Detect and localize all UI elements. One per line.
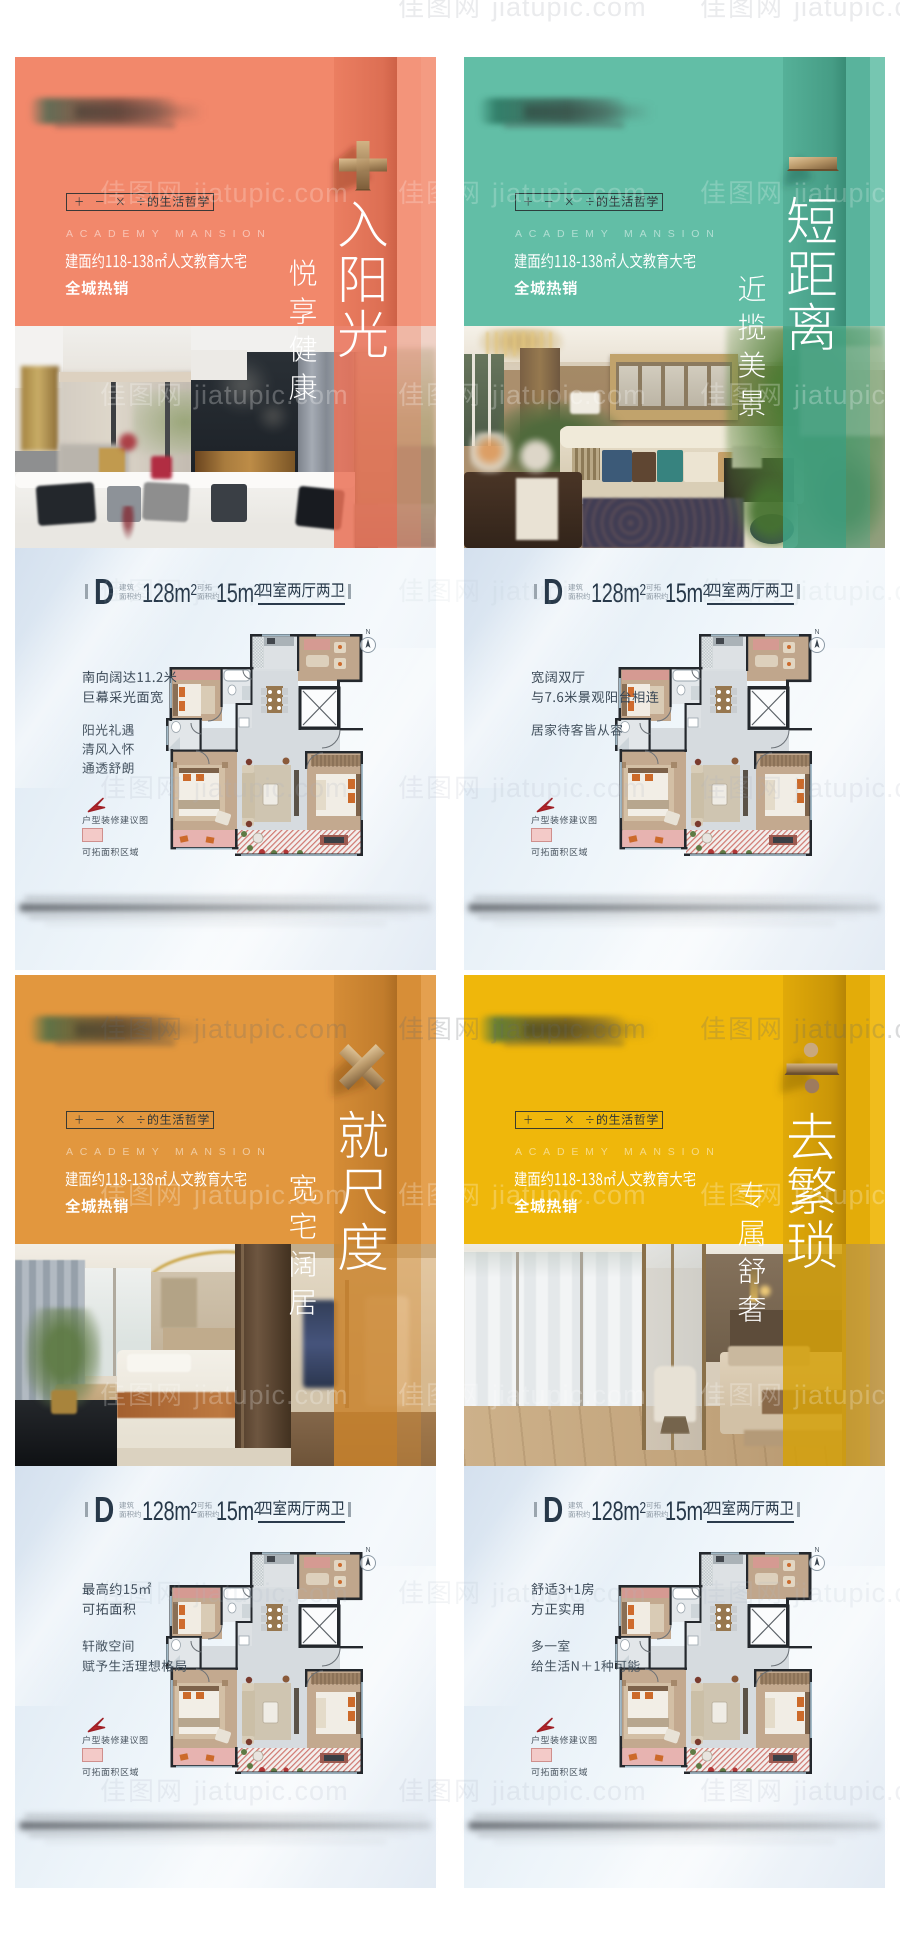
svg-text:N: N [814, 629, 819, 636]
svg-text:N: N [814, 1547, 819, 1554]
svg-text:N: N [365, 629, 370, 636]
svg-text:N: N [365, 1547, 370, 1554]
